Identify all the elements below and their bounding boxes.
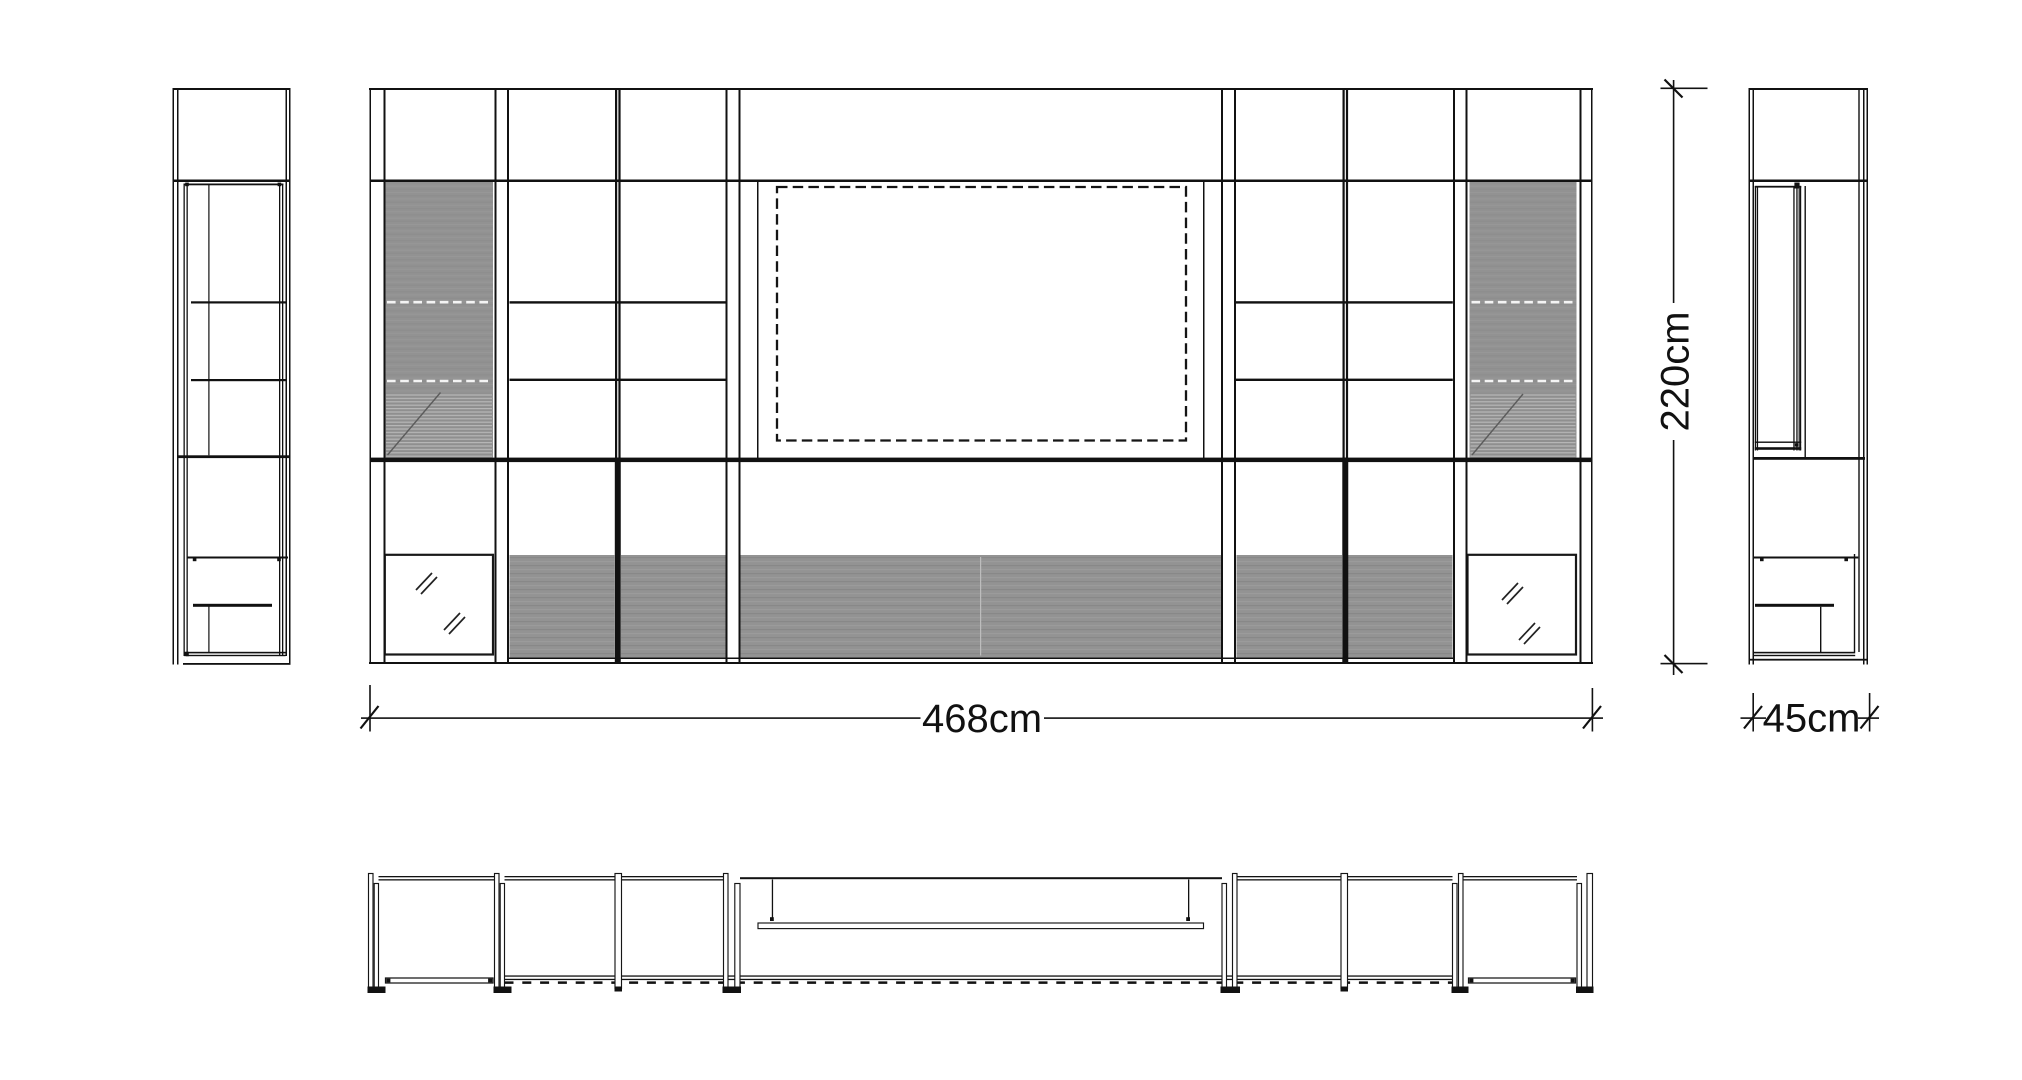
svg-text:45cm: 45cm: [1763, 697, 1861, 741]
svg-text:468cm: 468cm: [922, 697, 1042, 741]
svg-text:220cm: 220cm: [1654, 311, 1698, 431]
